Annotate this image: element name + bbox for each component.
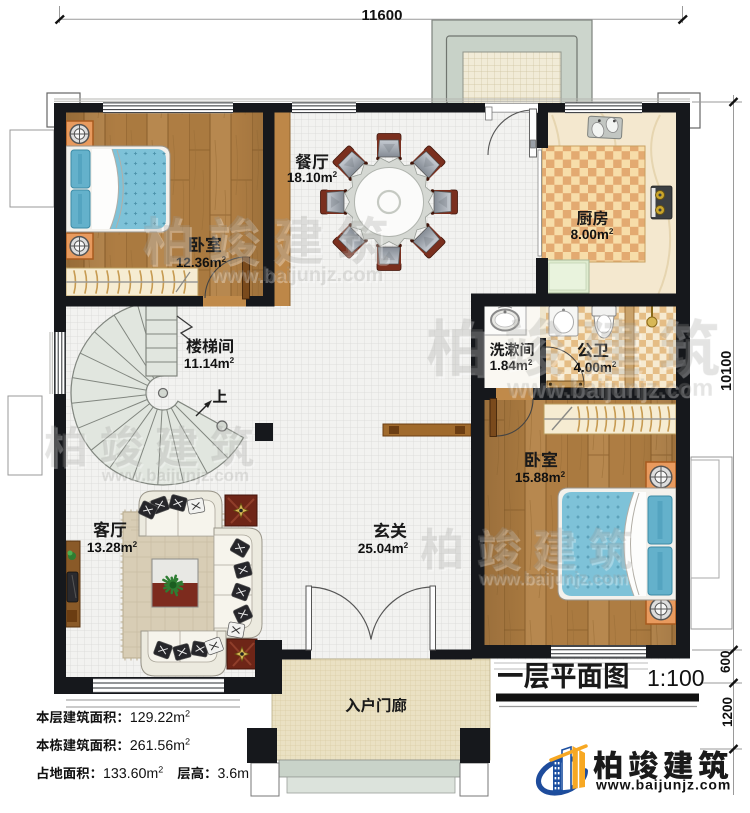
svg-text:1200: 1200	[720, 697, 735, 727]
svg-text:www.baijunjz.com: www.baijunjz.com	[595, 777, 731, 793]
svg-text:600: 600	[718, 650, 733, 673]
svg-text:10100: 10100	[719, 351, 735, 391]
svg-text:1:100: 1:100	[647, 665, 705, 691]
svg-text:11600: 11600	[362, 7, 403, 24]
